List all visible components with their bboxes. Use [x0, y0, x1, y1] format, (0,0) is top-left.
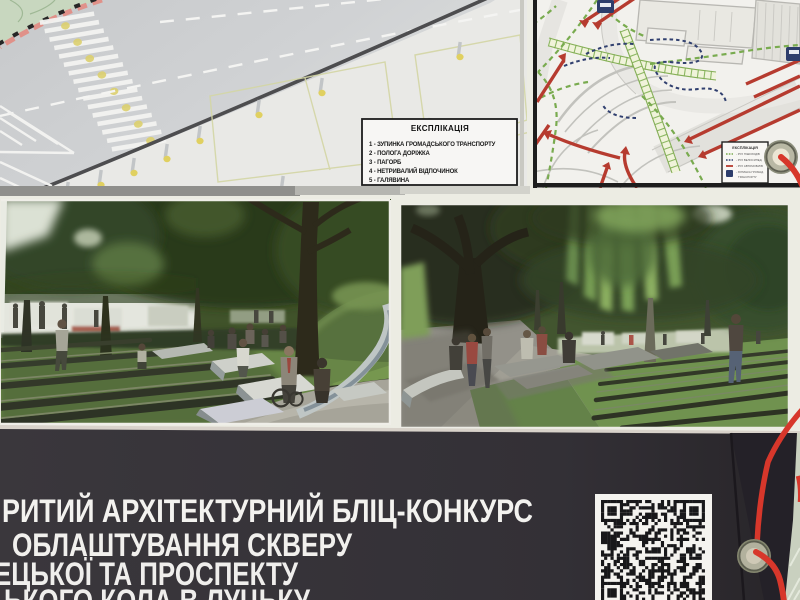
svg-text:ТРАНСПОРТУ: ТРАНСПОРТУ	[738, 175, 757, 179]
svg-text:- ЗУПИНКА ГРОМАД.: - ЗУПИНКА ГРОМАД.	[736, 170, 764, 174]
svg-text:4 - НЕТРИВАЛИЙ ВІДПОЧИНОК: 4 - НЕТРИВАЛИЙ ВІДПОЧИНОК	[369, 167, 458, 175]
svg-text:ЕКСПЛІКАЦІЯ: ЕКСПЛІКАЦІЯ	[732, 146, 758, 150]
svg-text:- РУХ ВЕЛОСИПЕД.: - РУХ ВЕЛОСИПЕД.	[736, 158, 762, 162]
svg-text:5 - ГАЛЯВИНА: 5 - ГАЛЯВИНА	[369, 178, 410, 184]
svg-text:ЕКСПЛІКАЦІЯ: ЕКСПЛІКАЦІЯ	[411, 124, 469, 133]
svg-text:ЬКОГО КОЛА В ЛУЦЬКУ: ЬКОГО КОЛА В ЛУЦЬКУ	[4, 583, 311, 600]
svg-text:- РУХ АВТОМОБІЛІВ: - РУХ АВТОМОБІЛІВ	[736, 164, 763, 168]
svg-text:3 - ПАГОРБ: 3 - ПАГОРБ	[369, 160, 402, 166]
svg-text:РИТИЙ АРХІТЕКТУРНИЙ БЛІЦ-КОНКУ: РИТИЙ АРХІТЕКТУРНИЙ БЛІЦ-КОНКУРС	[2, 493, 533, 529]
svg-text:- РУХ ПІШОХОДІВ: - РУХ ПІШОХОДІВ	[736, 152, 760, 156]
svg-text:1 - ЗУПИНКА ГРОМАДСЬКОГО ТРАНС: 1 - ЗУПИНКА ГРОМАДСЬКОГО ТРАНСПОРТУ	[369, 142, 496, 148]
svg-text:2 - ПОЛОГА ДОРІЖКА: 2 - ПОЛОГА ДОРІЖКА	[369, 151, 431, 157]
